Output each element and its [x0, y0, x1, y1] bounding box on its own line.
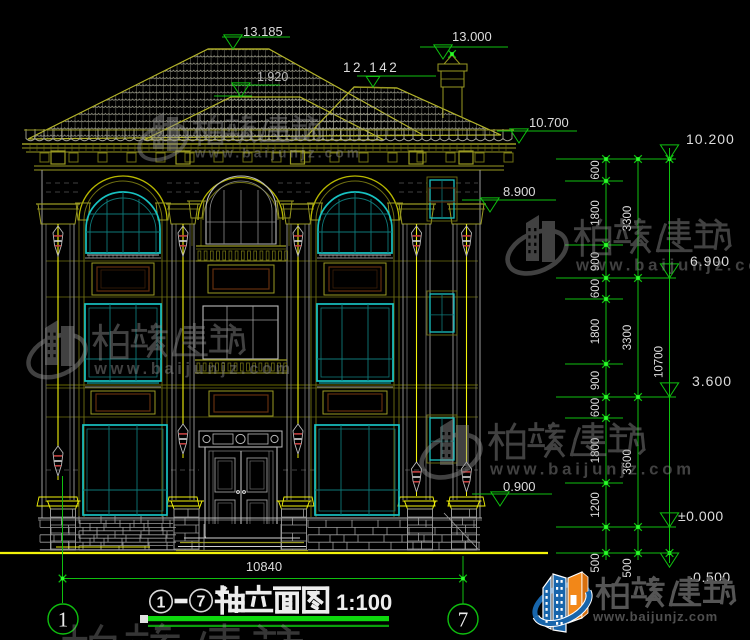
svg-text:7: 7	[197, 594, 206, 611]
svg-text:3300: 3300	[622, 325, 634, 351]
svg-text:600: 600	[590, 279, 602, 298]
svg-text:500: 500	[590, 553, 602, 572]
svg-text:7: 7	[458, 608, 469, 632]
svg-text:1:100: 1:100	[336, 590, 392, 615]
svg-text:600: 600	[590, 398, 602, 417]
svg-text:10.700: 10.700	[529, 115, 569, 130]
svg-text:12.142: 12.142	[343, 60, 399, 75]
svg-text:www.baijunjz.com: www.baijunjz.com	[194, 145, 362, 160]
svg-text:1: 1	[157, 595, 166, 612]
svg-text:10700: 10700	[654, 346, 666, 378]
svg-text:1800: 1800	[590, 319, 602, 345]
svg-text:500: 500	[622, 558, 634, 577]
svg-text:±0.000: ±0.000	[678, 508, 724, 524]
svg-text:600: 600	[590, 160, 602, 179]
svg-text:10.200: 10.200	[686, 131, 735, 147]
svg-text:8.900: 8.900	[503, 184, 536, 199]
svg-text:1: 1	[58, 608, 69, 632]
svg-text:10840: 10840	[246, 559, 282, 574]
svg-text:900: 900	[590, 371, 602, 390]
svg-text:0.900: 0.900	[503, 479, 536, 494]
svg-text:www.baijunjz.com: www.baijunjz.com	[489, 459, 695, 478]
svg-text:www.baijunjz.com: www.baijunjz.com	[592, 609, 718, 624]
svg-text:3.600: 3.600	[692, 373, 732, 389]
svg-text:www.baijunjz.com: www.baijunjz.com	[93, 360, 294, 378]
svg-text:13.000: 13.000	[452, 29, 492, 44]
svg-text:www.baijunjz.com: www.baijunjz.com	[575, 255, 750, 274]
svg-text:1200: 1200	[590, 492, 602, 518]
svg-text:1.920: 1.920	[257, 70, 288, 84]
svg-text:13.185: 13.185	[243, 24, 283, 39]
